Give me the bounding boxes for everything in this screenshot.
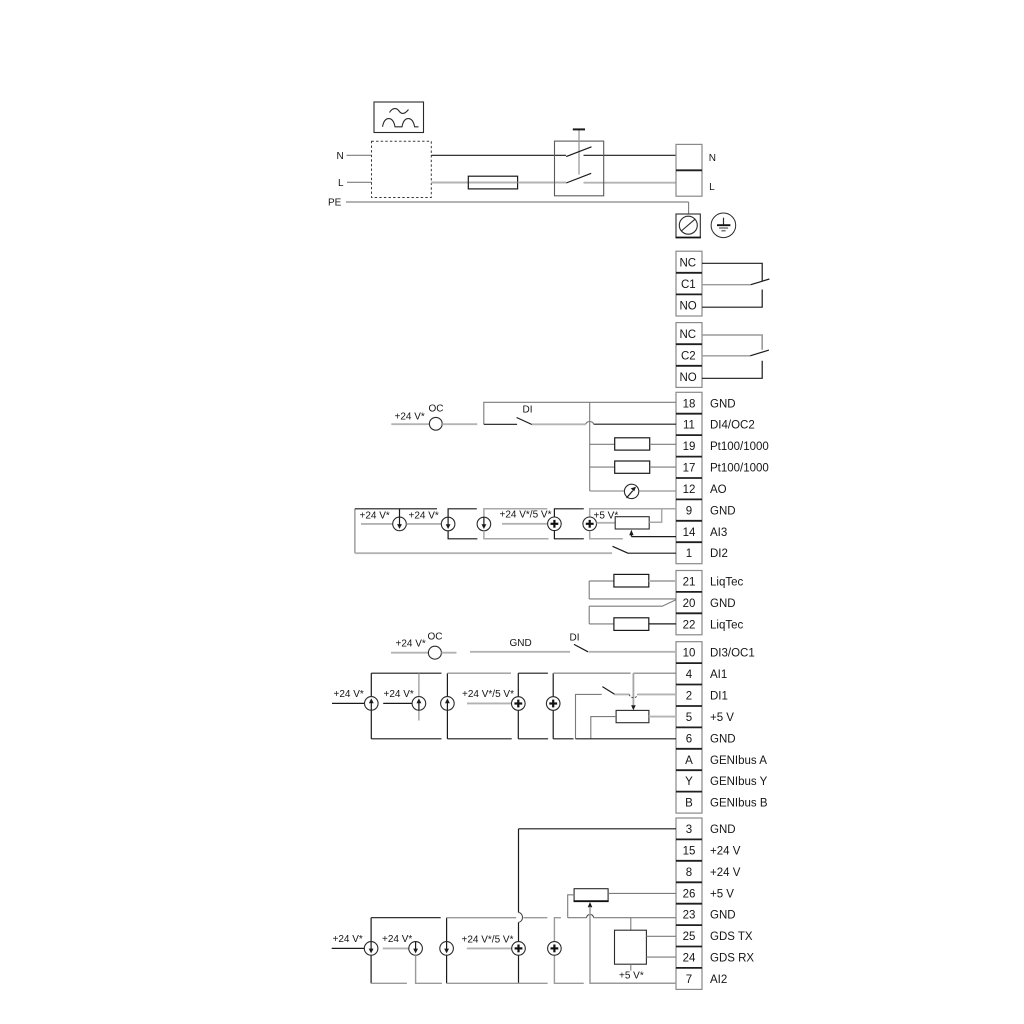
svg-text:+24 V: +24 V [710, 867, 741, 879]
svg-text:5: 5 [686, 712, 692, 724]
svg-text:GND: GND [510, 638, 532, 649]
svg-text:DI1: DI1 [710, 691, 728, 703]
svg-text:21: 21 [683, 577, 696, 589]
svg-text:GDS TX: GDS TX [710, 931, 753, 943]
svg-text:+5 V: +5 V [710, 712, 734, 724]
svg-text:+24 V*: +24 V* [409, 511, 439, 522]
svg-text:4: 4 [686, 669, 693, 681]
svg-text:18: 18 [683, 398, 696, 410]
svg-text:LiqTec: LiqTec [710, 619, 743, 631]
svg-text:N: N [337, 151, 344, 162]
svg-text:AI2: AI2 [710, 974, 727, 986]
svg-text:GND: GND [710, 910, 736, 922]
svg-text:GND: GND [710, 733, 736, 745]
svg-text:GND: GND [710, 505, 736, 517]
svg-text:+5 V*: +5 V* [594, 510, 619, 521]
svg-text:+24 V*: +24 V* [333, 934, 363, 945]
svg-text:GDS RX: GDS RX [710, 953, 754, 965]
svg-text:N: N [709, 153, 716, 164]
svg-text:1: 1 [686, 548, 692, 560]
svg-text:9: 9 [686, 505, 692, 517]
svg-text:GENIbus Y: GENIbus Y [710, 776, 768, 788]
svg-text:NC: NC [680, 329, 697, 341]
svg-text:7: 7 [686, 974, 692, 986]
svg-text:DI: DI [523, 405, 533, 416]
svg-text:+24 V*: +24 V* [396, 639, 426, 650]
svg-text:DI2: DI2 [710, 548, 728, 560]
svg-text:8: 8 [686, 867, 692, 879]
svg-text:GENIbus A: GENIbus A [710, 755, 767, 767]
svg-text:22: 22 [683, 619, 696, 631]
svg-text:GND: GND [710, 824, 736, 836]
svg-text:12: 12 [683, 484, 696, 496]
svg-text:OC: OC [429, 404, 444, 415]
svg-text:B: B [685, 798, 693, 810]
svg-text:DI: DI [570, 633, 580, 644]
svg-text:+5 V: +5 V [710, 888, 734, 900]
svg-text:NC: NC [680, 257, 697, 269]
svg-text:Y: Y [685, 776, 693, 788]
svg-text:+24 V*/5 V*: +24 V*/5 V* [500, 510, 552, 521]
svg-text:23: 23 [683, 910, 696, 922]
svg-text:+24 V*: +24 V* [395, 412, 425, 423]
svg-text:GENIbus B: GENIbus B [710, 798, 768, 810]
svg-text:PE: PE [328, 198, 342, 209]
svg-text:AI1: AI1 [710, 669, 727, 681]
svg-text:+24 V*/5 V*: +24 V*/5 V* [462, 935, 514, 946]
svg-text:+24 V*/5 V*: +24 V*/5 V* [462, 689, 514, 700]
svg-text:3: 3 [686, 824, 692, 836]
svg-text:+24 V: +24 V [710, 845, 741, 857]
svg-text:+24 V*: +24 V* [382, 934, 412, 945]
svg-text:20: 20 [683, 598, 696, 610]
svg-text:14: 14 [683, 527, 696, 539]
svg-text:25: 25 [683, 931, 696, 943]
svg-text:26: 26 [683, 888, 696, 900]
svg-text:15: 15 [683, 845, 696, 857]
svg-text:Pt100/1000: Pt100/1000 [710, 463, 769, 475]
svg-text:11: 11 [683, 420, 695, 432]
svg-text:A: A [685, 755, 693, 767]
svg-text:6: 6 [686, 733, 692, 745]
svg-text:19: 19 [683, 441, 696, 453]
svg-text:C2: C2 [681, 350, 696, 362]
svg-text:2: 2 [686, 691, 692, 703]
svg-text:NO: NO [680, 301, 697, 313]
svg-text:LiqTec: LiqTec [710, 577, 743, 589]
svg-text:GND: GND [710, 598, 736, 610]
svg-text:+5 V*: +5 V* [619, 970, 644, 981]
svg-text:GND: GND [710, 398, 736, 410]
svg-text:+24 V*: +24 V* [360, 511, 390, 522]
svg-text:DI4/OC2: DI4/OC2 [710, 420, 755, 432]
svg-text:OC: OC [428, 632, 443, 643]
svg-text:+24 V*: +24 V* [384, 689, 414, 700]
svg-text:10: 10 [683, 648, 696, 660]
svg-text:AI3: AI3 [710, 527, 727, 539]
svg-text:17: 17 [683, 463, 696, 475]
svg-text:AO: AO [710, 484, 727, 496]
svg-text:Pt100/1000: Pt100/1000 [710, 441, 769, 453]
svg-text:+24 V*: +24 V* [334, 689, 364, 700]
svg-text:L: L [709, 182, 715, 193]
svg-text:24: 24 [683, 953, 696, 965]
svg-text:NO: NO [680, 372, 697, 384]
svg-text:C1: C1 [681, 279, 696, 291]
svg-text:DI3/OC1: DI3/OC1 [710, 648, 755, 660]
svg-text:L: L [338, 178, 344, 189]
